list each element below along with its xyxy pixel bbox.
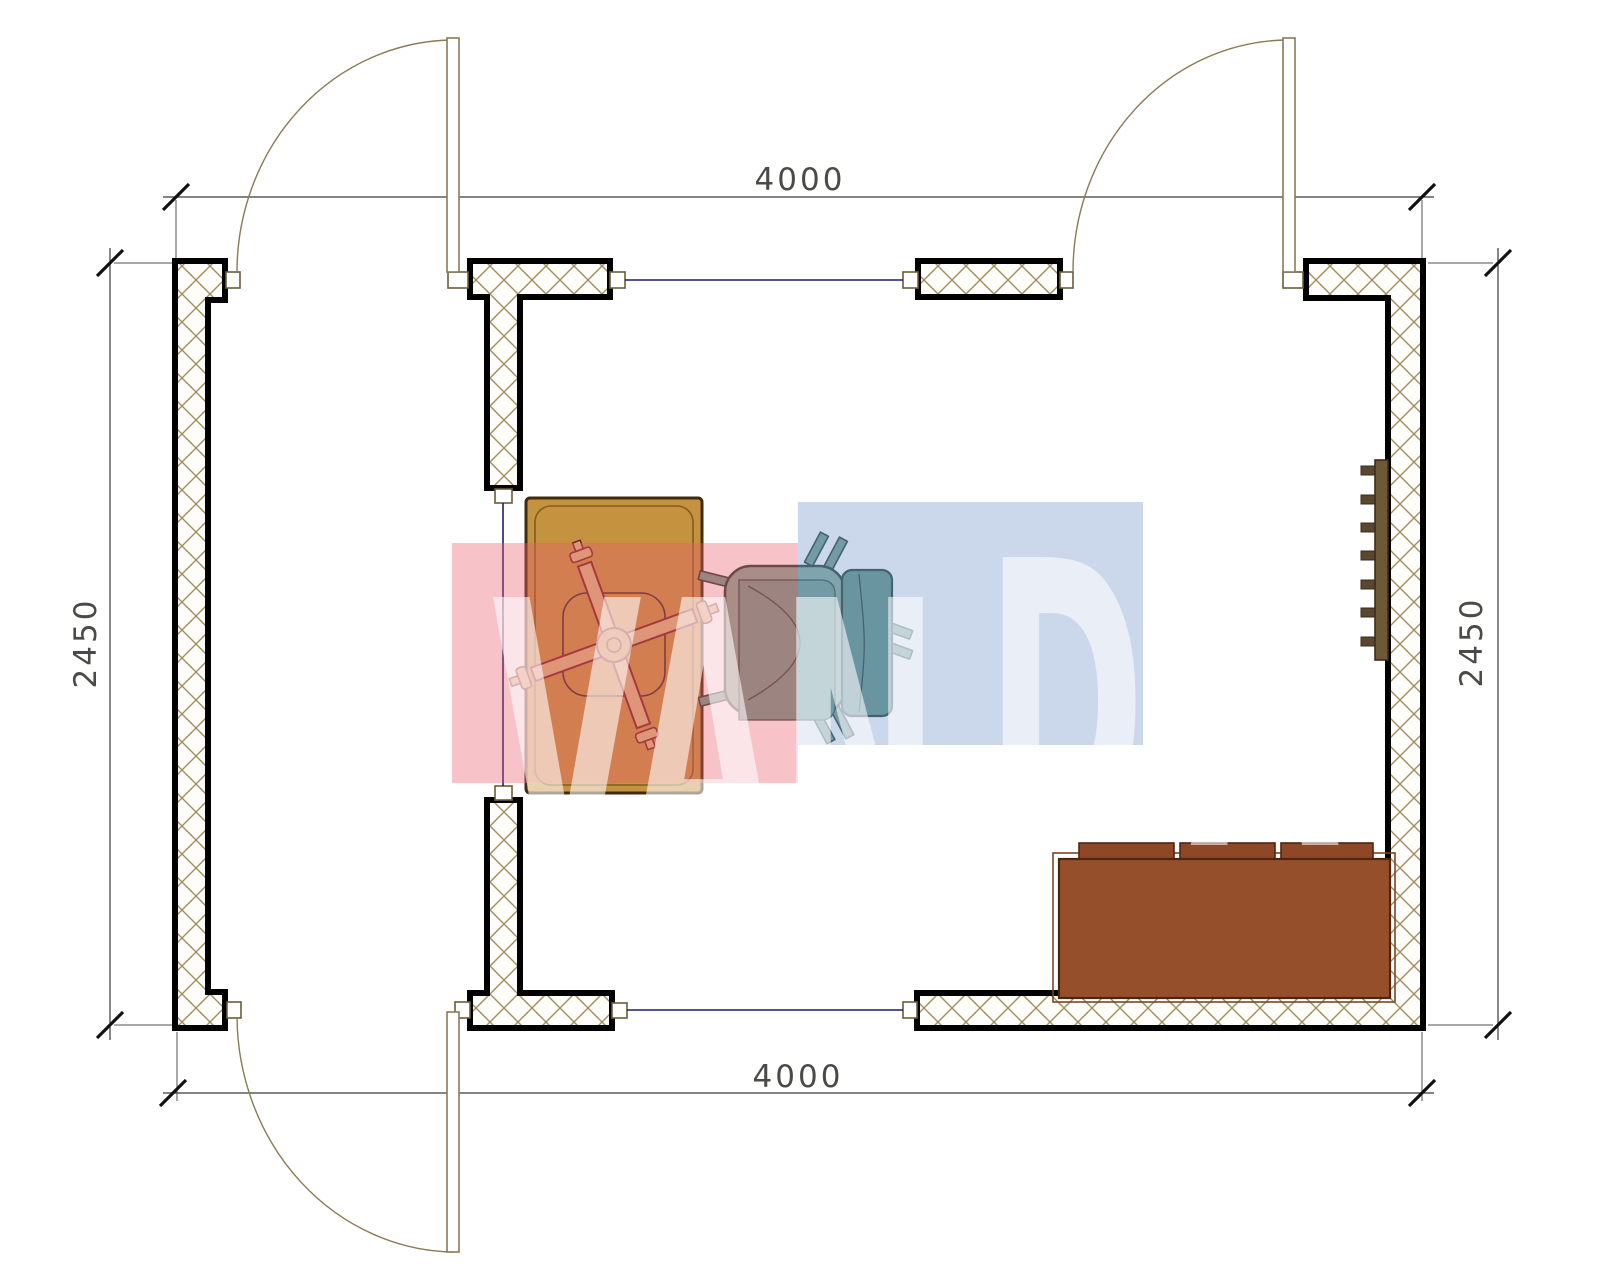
cap (226, 272, 240, 288)
door-swing-arc (1073, 40, 1287, 272)
wall-top-left-tee (470, 261, 610, 488)
dim-label-bottom: 4000 (753, 1059, 844, 1095)
door-top-left (237, 38, 459, 272)
watermark: VAN DA (452, 479, 1384, 979)
watermark-text-da: DA (985, 479, 1384, 939)
door-leaf (447, 1012, 459, 1252)
floor-plan-canvas: 4000 4000 2450 2450 (0, 0, 1600, 1280)
door-top-right (1073, 38, 1295, 272)
dim-label-top: 4000 (755, 162, 846, 198)
cap (903, 272, 918, 288)
cap (612, 1003, 627, 1018)
wall-top-middle (918, 261, 1060, 297)
cap (1060, 272, 1073, 288)
door-leaf (1283, 38, 1295, 272)
wall-left (175, 261, 225, 1028)
cap (1283, 272, 1303, 288)
door-swing-arc (237, 1017, 453, 1252)
cap (227, 1002, 241, 1018)
door-bottom-left (237, 1012, 459, 1252)
cap (903, 1002, 917, 1018)
dim-label-left: 2450 (68, 598, 104, 689)
door-leaf (447, 38, 459, 272)
cap (610, 272, 625, 288)
watermark-text-van: VAN (492, 519, 940, 979)
cap (495, 489, 512, 503)
door-swing-arc (237, 40, 451, 272)
cap (448, 272, 468, 288)
dim-label-right: 2450 (1454, 597, 1490, 688)
floor-plan-drawing: 4000 4000 2450 2450 (0, 0, 1600, 1280)
